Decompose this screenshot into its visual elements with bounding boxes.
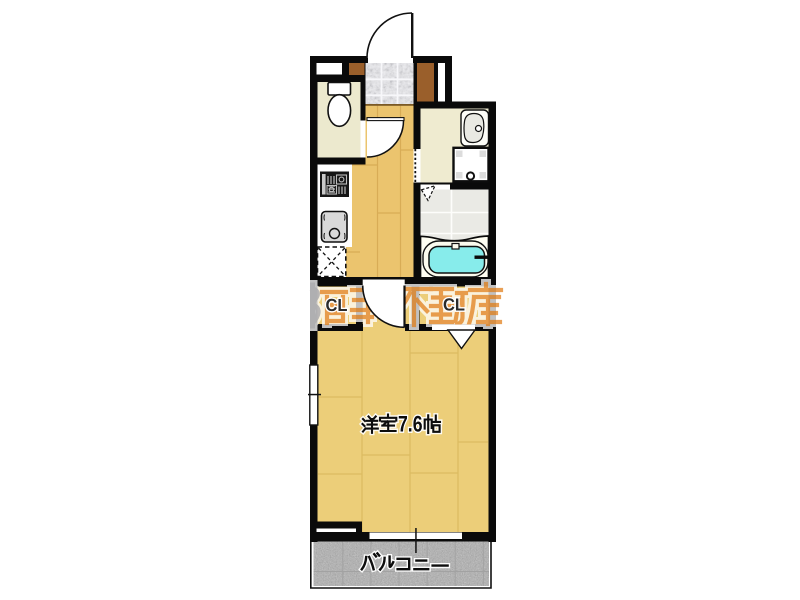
svg-text:CL: CL xyxy=(443,295,465,315)
svg-text:CL: CL xyxy=(326,295,348,315)
svg-text:7.6: 7.6 xyxy=(398,412,423,437)
